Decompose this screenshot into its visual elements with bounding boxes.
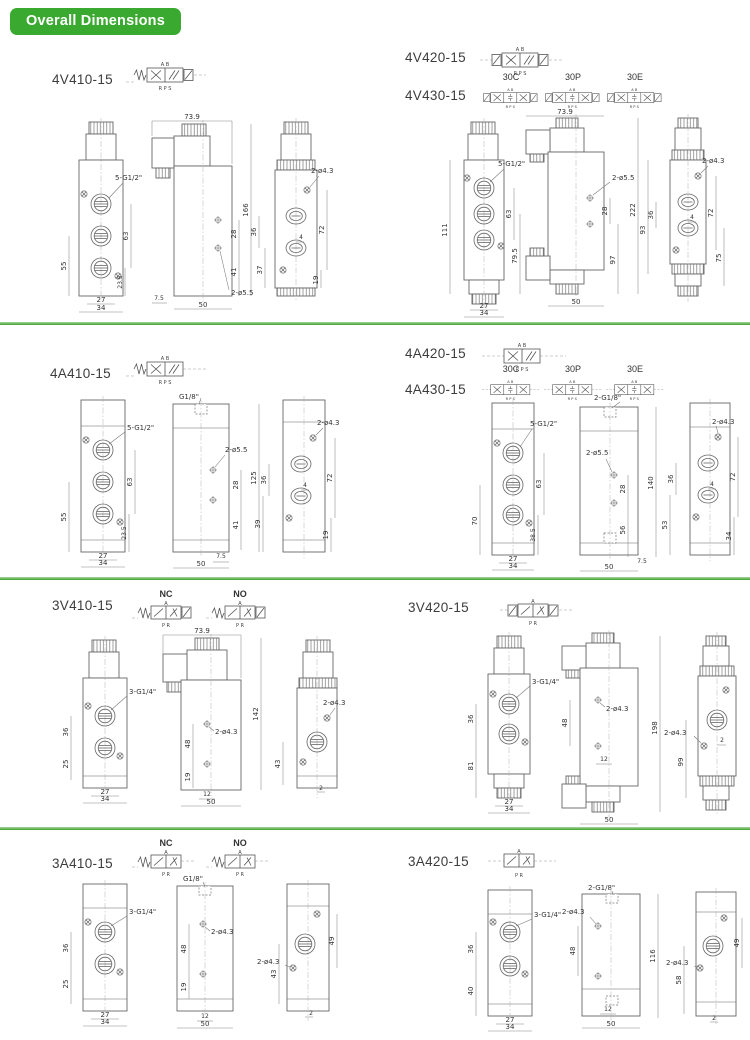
dim-label: 50 [607, 1020, 616, 1028]
model-label-4v420: 4V420-15 [405, 50, 466, 65]
dim-label: 2 [319, 785, 323, 792]
drawing-4a420-430: 5-G1/2" 63 70 38.5 27 34 2-G1/8" 2-ø5.5 [468, 393, 748, 578]
valve-symbol-4v430-30c: A B R P S [482, 84, 540, 112]
hole-callout: 2-ø5.5 [231, 289, 253, 297]
dim-label: 4 [303, 482, 307, 489]
front-view: 3-G1/4" 36 40 27 34 [467, 886, 561, 1031]
dim-label: 36 [62, 727, 70, 736]
symbol-top-ports: A [531, 599, 535, 605]
symbol-bottom-ports: P R [529, 621, 538, 627]
hole-callout: 2-ø4.3 [666, 959, 688, 967]
dim-label: 63 [505, 210, 513, 219]
dim-label: 4 [710, 481, 714, 488]
dim-label: 34 [509, 562, 518, 570]
dim-label: 43 [270, 970, 278, 979]
drawing-4v420-430: 5-G1/2" 63 111 79.5 27 34 73.9 [420, 110, 748, 322]
thread-label: 5-G1/2" [530, 420, 557, 428]
symbol-bottom-ports: R P S [159, 380, 172, 386]
dim-label: 93 [639, 226, 647, 235]
dim-label: 7.5 [154, 295, 164, 302]
symbol-top-ports: A B [161, 356, 170, 362]
dim-label: 34 [97, 304, 106, 312]
valve-symbol-4v430-30p: A B R P S [544, 84, 602, 112]
back-view: 2-ø4.3 2 99 [664, 632, 736, 816]
dim-label: 28 [619, 485, 627, 494]
section-divider [0, 577, 750, 580]
variant-caption-30p: 30P [544, 72, 602, 82]
dim-label: 4 [299, 234, 303, 241]
thread-label: 5-G1/2" [127, 424, 154, 432]
dim-label: 116 [649, 949, 657, 963]
dim-label: 34 [101, 1018, 110, 1026]
dim-label: 97 [609, 256, 617, 265]
symbol-top-ports: A [164, 850, 168, 856]
dim-label: 53 [661, 521, 669, 530]
dim-label: 73.9 [194, 627, 210, 635]
symbol-bottom-ports: R P S [506, 105, 516, 109]
dim-label: 72 [729, 473, 737, 482]
front-view: 5-G1/2" 63 111 79.5 27 34 [441, 118, 525, 317]
dim-label: 34 [506, 1023, 515, 1031]
back-view: 2-ø4.3 49 58 2 [666, 888, 742, 1026]
dim-label: 48 [184, 740, 192, 749]
dim-label: 50 [605, 563, 614, 571]
symbol-top-ports: A B [516, 47, 525, 53]
dim-label: 28 [230, 230, 238, 239]
dim-label: 198 [651, 721, 659, 734]
dim-label: 34 [99, 559, 108, 567]
hole-callout: 2-ø4.3 [664, 729, 686, 737]
dim-label: 37 [256, 266, 264, 275]
caption-no: NO [212, 589, 268, 599]
model-label-4v410: 4V410-15 [52, 72, 113, 87]
dim-label: 75 [715, 254, 723, 263]
drawing-3v420: 3-G1/4" 36 81 27 34 48 2-ø4.3 [458, 628, 750, 838]
hole-callout: 2-ø4.3 [257, 958, 279, 966]
symbol-top-ports: A B [631, 380, 638, 384]
side-view: G1/8" 48 2-ø4.3 19 12 50 [177, 875, 233, 1028]
dim-label: 43 [274, 760, 282, 769]
thread-label: 3-G1/4" [532, 678, 559, 686]
hole-callout: 2-ø4.3 [702, 157, 724, 165]
dim-label: 140 [647, 476, 655, 489]
symbol-top-ports: A [238, 850, 242, 856]
dim-label: 12 [203, 791, 211, 798]
page-title: Overall Dimensions [10, 8, 181, 35]
front-view: 5-G1/2" 63 70 38.5 27 34 [471, 399, 557, 570]
front-view: 3-G1/4" 36 25 27 34 [62, 880, 156, 1026]
model-label-3a410: 3A410-15 [52, 856, 113, 871]
symbol-top-ports: A [517, 849, 521, 855]
dim-label: 23.5 [121, 526, 128, 540]
back-view: 2-ø4.3 36 37 4 72 19 [250, 118, 333, 302]
hole-callout: 2-ø5.5 [225, 446, 247, 454]
dim-label: 50 [197, 560, 206, 568]
hole-callout: 2-ø4.3 [323, 699, 345, 707]
hole-callout: 2-ø4.3 [562, 908, 584, 916]
hole-callout: 2-ø4.3 [211, 928, 233, 936]
catalog-page: Overall Dimensions 4V410-15 A B R P S 4V… [0, 0, 750, 1040]
dim-label: 73.9 [184, 113, 200, 121]
dim-label: 50 [199, 301, 208, 309]
back-view: 2-ø4.3 49 43 2 [257, 880, 337, 1021]
dim-label: 28 [601, 207, 609, 216]
dim-label: 36 [467, 944, 475, 953]
port-label: G1/8" [183, 875, 203, 883]
model-label-4a420: 4A420-15 [405, 346, 466, 361]
port-label: 2-G1/8" [594, 394, 621, 402]
model-label-4v430: 4V430-15 [405, 88, 466, 103]
dim-label: 41 [232, 521, 240, 530]
side-view: 2-G1/8" 2-ø4.3 48 116 12 50 [562, 884, 658, 1028]
dim-label: 36 [250, 227, 258, 236]
dim-label: 63 [122, 232, 130, 241]
drawing-4a410: 5-G1/2" 63 55 23.5 27 34 G1/8" 2-ø5.5 28 [55, 392, 355, 574]
back-view: 2-ø4.3 43 2 [274, 636, 345, 798]
dim-label: 38.5 [530, 528, 537, 542]
dim-label: 73.9 [557, 108, 573, 116]
dim-label: 125 [250, 471, 258, 484]
valve-symbol-4v430-30e: A B R P S [606, 84, 664, 112]
symbol-top-ports: A B [631, 88, 638, 92]
dim-label: 222 [629, 203, 637, 216]
back-view: 2-ø4.3 36 4 72 39 19 [254, 396, 339, 558]
dim-label: 12 [600, 756, 608, 763]
dim-label: 99 [677, 758, 685, 767]
dim-label: 49 [328, 937, 336, 946]
dim-label: 36 [667, 474, 675, 483]
variant-caption-30e: 30E [606, 364, 664, 374]
drawing-3v410: 3-G1/4" 36 25 27 34 73.9 142 48 [55, 630, 355, 815]
symbol-bottom-ports: R P S [630, 105, 640, 109]
back-view: 2-ø4.3 36 4 72 53 34 [661, 399, 738, 561]
dim-label: 28 [232, 481, 240, 490]
side-view: 2-G1/8" 2-ø5.5 28 140 56 7.5 50 [580, 394, 656, 571]
section-divider [0, 322, 750, 325]
dim-label: 55 [60, 262, 68, 271]
valve-symbol-4v410: A B R P S [126, 60, 210, 96]
symbol-bottom-ports: P R [515, 873, 524, 879]
dim-label: 50 [605, 816, 614, 824]
dim-label: 40 [467, 987, 475, 996]
valve-symbol-3v410-no: A P R [206, 600, 274, 630]
variant-caption-30c: 30C [482, 364, 540, 374]
drawing-4v410: 5-G1/2" 63 55 23.5 27 34 73.9 166 [55, 112, 355, 317]
dim-label: 19 [180, 983, 188, 992]
dim-label: 27 [97, 296, 106, 304]
thread-label: 5-G1/2" [498, 160, 525, 168]
dim-label: 34 [725, 531, 733, 540]
front-view: 3-G1/4" 36 25 27 34 [62, 636, 156, 803]
model-label-4a410: 4A410-15 [50, 366, 111, 381]
caption-no: NO [212, 838, 268, 848]
dim-label: 166 [242, 203, 250, 217]
port-label: G1/8" [179, 393, 199, 401]
caption-nc: NC [138, 838, 194, 848]
symbol-top-ports: A B [518, 343, 527, 349]
drawing-3a410: 3-G1/4" 36 25 27 34 G1/8" 48 2-ø4.3 19 1… [55, 876, 355, 1040]
dim-label: 23.5 [117, 275, 124, 289]
dim-label: 50 [572, 298, 581, 306]
dim-label: 7.5 [216, 553, 226, 560]
dim-label: 36 [467, 714, 475, 723]
hole-callout: 2-ø4.3 [317, 419, 339, 427]
hole-callout: 2-ø5.5 [586, 449, 608, 457]
dim-label: 58 [675, 976, 683, 985]
dim-label: 55 [60, 513, 68, 522]
hole-callout: 2-ø4.3 [311, 167, 333, 175]
dim-label: 34 [480, 309, 489, 317]
hole-callout: 2-ø4.3 [606, 705, 628, 713]
valve-symbol-3a410-no: A P R [206, 849, 274, 879]
front-view: 5-G1/2" 63 55 23.5 27 34 [60, 396, 154, 567]
back-view: 2-ø4.3 36 4 72 93 75 [639, 114, 724, 302]
dim-label: 36 [62, 943, 70, 952]
dim-label: 48 [180, 945, 188, 954]
dim-label: 72 [318, 226, 326, 235]
symbol-top-ports: A [164, 601, 168, 607]
dim-label: 72 [326, 474, 334, 483]
dim-label: 19 [184, 773, 192, 782]
symbol-top-ports: A B [507, 88, 514, 92]
dim-label: 41 [230, 268, 238, 277]
dim-label: 19 [312, 276, 320, 285]
dim-label: 72 [707, 209, 715, 218]
side-view: 48 2-ø4.3 12 198 50 [561, 630, 660, 824]
dim-label: 2 [720, 737, 724, 744]
symbol-bottom-ports: P R [236, 623, 245, 629]
dim-label: 25 [62, 760, 70, 769]
dim-label: 19 [322, 531, 330, 540]
dim-label: 36 [260, 475, 268, 484]
dim-label: 12 [604, 1006, 612, 1013]
side-view: 73.9 166 28 41 2-ø5.5 7.5 50 [152, 113, 253, 309]
dim-label: 79.5 [511, 248, 519, 264]
symbol-bottom-ports: R P S [159, 86, 172, 92]
dim-label: 34 [101, 795, 110, 803]
model-label-3v420: 3V420-15 [408, 600, 469, 615]
symbol-top-ports: A [238, 601, 242, 607]
dim-label: 81 [467, 762, 475, 771]
hole-callout: 2-ø4.3 [712, 418, 734, 426]
valve-symbol-3v410-nc: A P R [132, 600, 200, 630]
hole-callout: 2-ø4.3 [215, 728, 237, 736]
dim-label: 39 [254, 520, 262, 529]
front-view: 5-G1/2" 63 55 23.5 27 34 [60, 118, 142, 312]
dim-label: 4 [690, 214, 694, 221]
variant-caption-30c: 30C [482, 72, 540, 82]
side-view: G1/8" 2-ø5.5 28 125 41 7.5 50 [173, 393, 259, 568]
dim-label: 63 [126, 478, 134, 487]
dim-label: 12 [201, 1013, 209, 1020]
symbol-top-ports: A B [569, 88, 576, 92]
symbol-top-ports: A B [569, 380, 576, 384]
hole-callout: 2-ø5.5 [612, 174, 634, 182]
symbol-bottom-ports: P R [162, 623, 171, 629]
dim-label: 70 [471, 517, 479, 526]
dim-label: 7.5 [637, 558, 647, 565]
section-divider [0, 827, 750, 830]
dim-label: 50 [207, 798, 216, 806]
thread-label: 3-G1/4" [129, 908, 156, 916]
side-view: 73.9 28 2-ø5.5 222 97 50 [526, 108, 638, 306]
dim-label: 56 [619, 525, 627, 534]
model-label-3a420: 3A420-15 [408, 854, 469, 869]
valve-symbol-4a410: A B R P S [126, 354, 210, 390]
dim-label: 50 [201, 1020, 210, 1028]
thread-label: 5-G1/2" [115, 174, 142, 182]
dim-label: 34 [505, 805, 514, 813]
symbol-top-ports: A B [507, 380, 514, 384]
dim-label: 63 [535, 480, 543, 489]
valve-symbol-3v420: A P R [500, 598, 576, 628]
dim-label: 111 [441, 223, 449, 236]
thread-label: 3-G1/4" [129, 688, 156, 696]
caption-nc: NC [138, 589, 194, 599]
front-view: 3-G1/4" 36 81 27 34 [467, 632, 559, 813]
variant-caption-30e: 30E [606, 72, 664, 82]
dim-label: 142 [252, 707, 260, 720]
model-label-4a430: 4A430-15 [405, 382, 466, 397]
dim-label: 25 [62, 980, 70, 989]
symbol-top-ports: A B [161, 62, 170, 68]
valve-symbol-3a420: A P R [488, 848, 560, 880]
dim-label: 2 [712, 1015, 716, 1022]
model-label-3v410: 3V410-15 [52, 598, 113, 613]
thread-label: 3-G1/4" [534, 911, 561, 919]
side-view: 73.9 142 48 2-ø4.3 19 12 50 [163, 627, 261, 806]
dim-label: 48 [569, 947, 577, 956]
dim-label: 2 [309, 1010, 313, 1017]
variant-caption-30p: 30P [544, 364, 602, 374]
dim-label: 49 [733, 939, 741, 948]
drawing-3a420: 3-G1/4" 36 40 27 34 2-G1/8" 2-ø4.3 48 11… [458, 884, 750, 1039]
dim-label: 48 [561, 719, 569, 728]
